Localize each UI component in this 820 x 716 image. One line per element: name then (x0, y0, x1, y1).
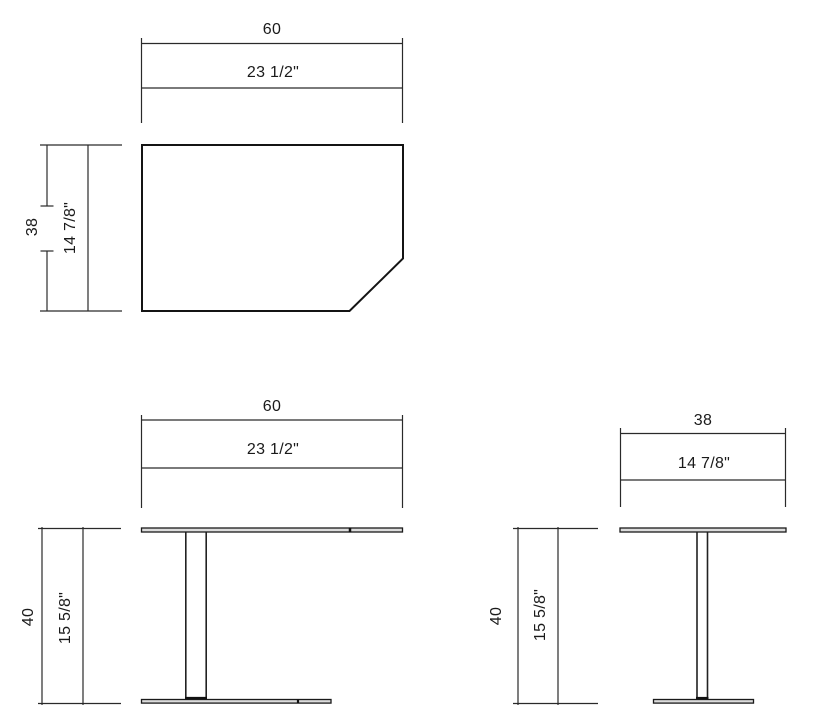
front-view-height-cm-label: 40 (21, 608, 37, 626)
side-view-height-in-label: 15 5/8" (533, 589, 549, 641)
top-view-depth-cm-label: 38 (25, 218, 41, 236)
drawing-linework (0, 0, 820, 716)
front-view-width-in-label: 23 1/2" (247, 442, 299, 458)
front-base-plate (142, 700, 332, 704)
side-view-height-cm-label: 40 (489, 607, 505, 625)
dimension-drawing: 60 23 1/2" 38 14 7/8" 60 23 1/2" 40 15 5… (0, 0, 820, 716)
top-view-width-in-label: 23 1/2" (247, 65, 299, 81)
top-view-depth-in-label: 14 7/8" (63, 202, 79, 254)
top-view-width-cm-label: 60 (263, 22, 281, 38)
top-view (40, 38, 403, 311)
side-view (513, 428, 786, 705)
front-view-width-cm-label: 60 (263, 399, 281, 415)
side-view-depth-cm-label: 38 (694, 413, 712, 429)
front-tabletop-panel (142, 528, 403, 532)
side-view-depth-in-label: 14 7/8" (678, 456, 730, 472)
front-view (38, 415, 403, 705)
side-base-plate (654, 700, 754, 704)
side-tabletop-panel (620, 528, 786, 532)
tabletop-outline (142, 145, 403, 311)
front-view-height-in-label: 15 5/8" (58, 592, 74, 644)
